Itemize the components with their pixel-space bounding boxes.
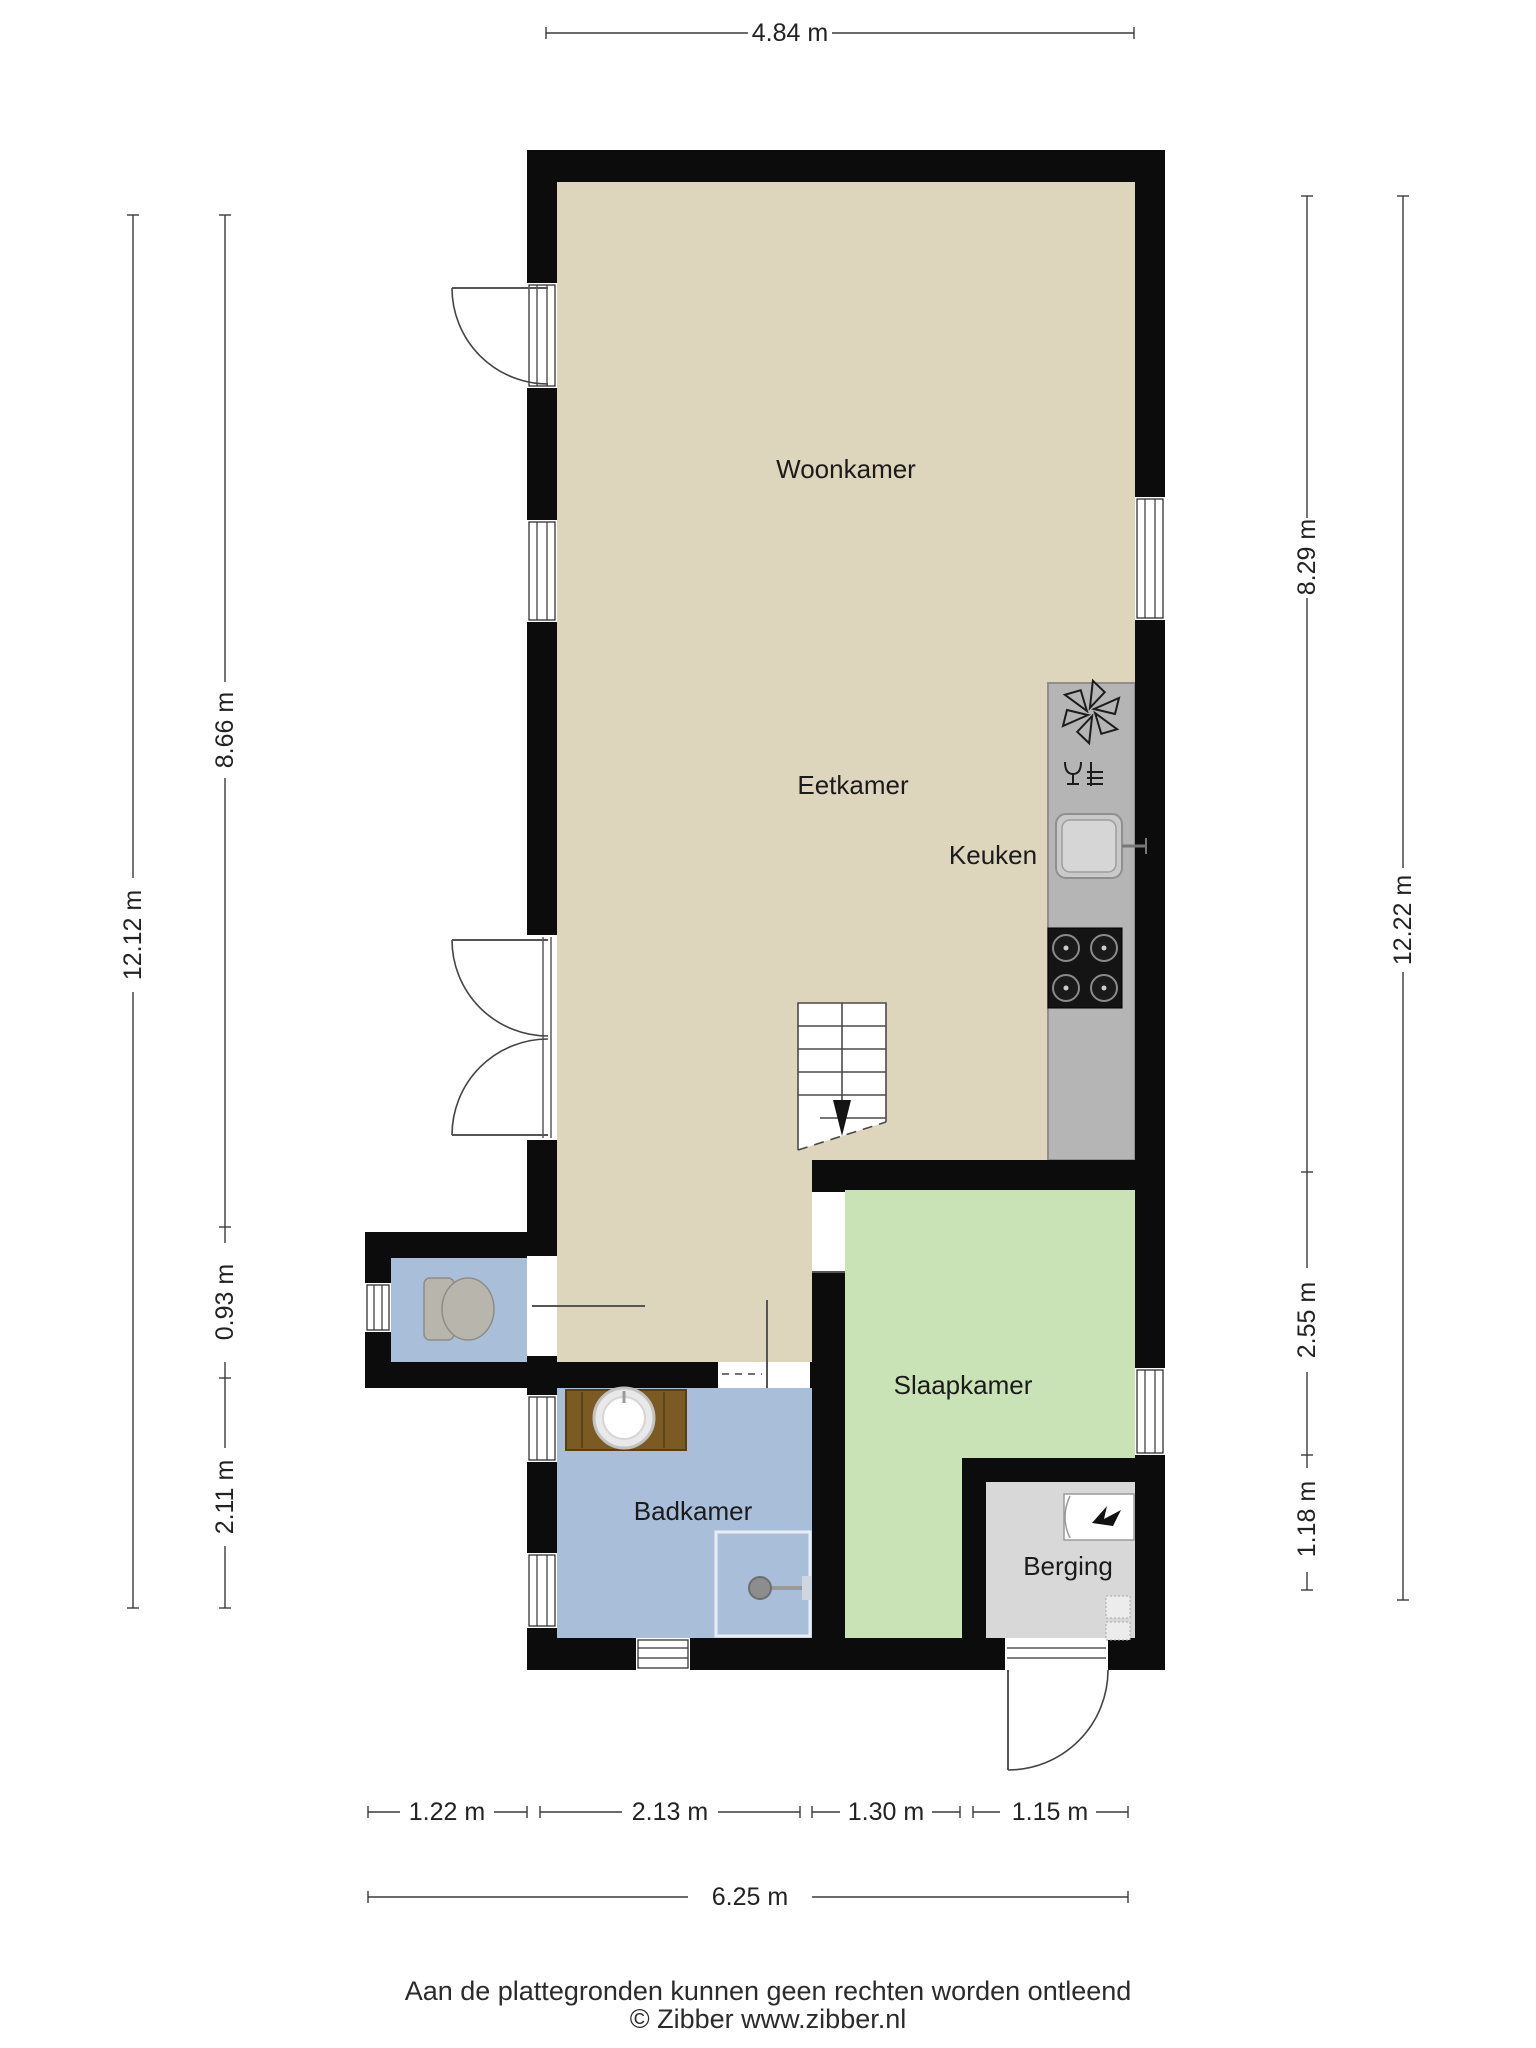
storage-appliances <box>1106 1596 1130 1640</box>
dim-right-total: 12.22 m <box>1389 196 1417 1600</box>
dim-bottom-seg1-label: 1.22 m <box>409 1798 485 1826</box>
floorplan-canvas: Woonkamer Eetkamer Keuken Slaapkamer Bad… <box>0 0 1536 2048</box>
vanity-sink-icon <box>566 1388 686 1450</box>
dim-right-middle-label: 2.55 m <box>1293 1282 1321 1358</box>
window-bathroom-2 <box>527 1553 557 1628</box>
dim-bottom-seg3-label: 1.30 m <box>848 1798 924 1826</box>
room-label-eetkamer: Eetkamer <box>797 770 909 800</box>
dim-top-width-label: 4.84 m <box>752 19 828 47</box>
window-bedroom <box>1135 1368 1165 1455</box>
dim-right-lower-label: 1.18 m <box>1293 1481 1321 1557</box>
dim-top: 4.84 m <box>546 19 1134 47</box>
dim-right-total-label: 12.22 m <box>1389 875 1417 965</box>
dim-left-segments: 8.66 m 0.93 m 2.11 m <box>211 215 239 1608</box>
room-label-keuken: Keuken <box>949 840 1037 870</box>
dim-bottom-total: 6.25 m <box>368 1883 1128 1911</box>
dim-left-middle-label: 0.93 m <box>211 1264 239 1340</box>
wall-bedroom-top <box>812 1160 1135 1190</box>
footer-copyright: © Zibber www.zibber.nl <box>630 2004 907 2034</box>
dim-left-lower-label: 2.11 m <box>211 1460 239 1535</box>
dim-right-segments: 8.29 m 2.55 m 1.18 m <box>1293 196 1321 1590</box>
storage-door <box>1005 1638 1108 1770</box>
dim-left-upper-label: 8.66 m <box>211 692 239 768</box>
dim-bottom-seg4-label: 1.15 m <box>1012 1798 1088 1826</box>
dim-left-total-label: 12.12 m <box>119 890 147 980</box>
wall-storage-top <box>962 1458 1135 1482</box>
dim-bottom-total-label: 6.25 m <box>712 1883 788 1911</box>
room-label-slaapkamer: Slaapkamer <box>894 1370 1033 1400</box>
room-label-berging: Berging <box>1023 1551 1113 1581</box>
dim-bottom-segments: 1.22 m 2.13 m 1.30 m 1.15 m <box>368 1798 1128 1826</box>
wall-toilet-top <box>365 1232 557 1258</box>
kitchen-counter <box>1048 683 1135 1160</box>
wall-storage-left <box>962 1458 986 1638</box>
entry-door <box>452 283 557 388</box>
floorplan-page: Woonkamer Eetkamer Keuken Slaapkamer Bad… <box>0 0 1536 2048</box>
room-label-badkamer: Badkamer <box>634 1496 753 1526</box>
window-bathroom-bottom <box>636 1638 690 1670</box>
french-doors <box>452 935 557 1140</box>
window-toilet <box>365 1283 391 1332</box>
toilet-icon <box>424 1278 494 1340</box>
bedroom-door <box>812 1192 845 1272</box>
window-bathroom-1 <box>527 1395 557 1462</box>
footer-disclaimer: Aan de plattegronden kunnen geen rechten… <box>405 1976 1132 2006</box>
room-label-woonkamer: Woonkamer <box>776 454 916 484</box>
wall-top <box>527 150 1165 182</box>
stove-icon <box>1048 928 1122 1008</box>
window-left <box>527 520 557 622</box>
dim-right-upper-label: 8.29 m <box>1293 519 1321 595</box>
boiler-icon <box>1064 1494 1134 1540</box>
window-right-upper <box>1135 497 1165 620</box>
dim-bottom-seg2-label: 2.13 m <box>632 1798 708 1826</box>
dim-left-total: 12.12 m <box>119 215 147 1608</box>
